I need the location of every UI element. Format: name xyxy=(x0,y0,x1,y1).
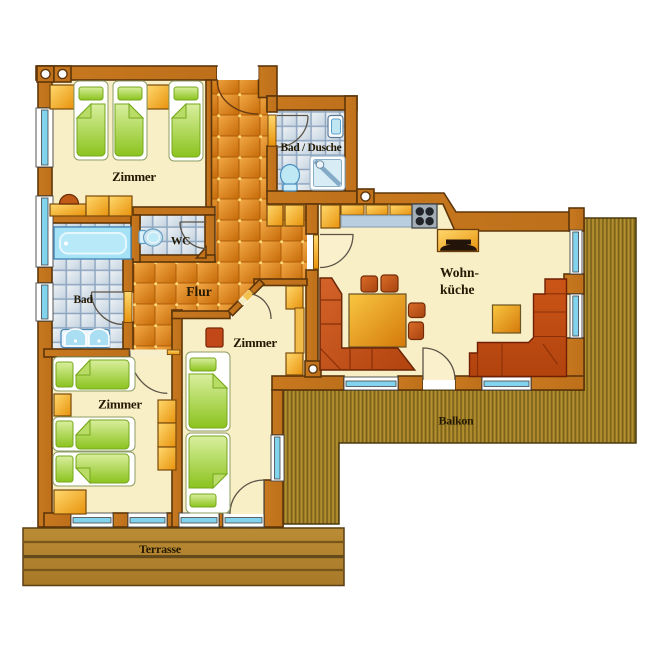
svg-text:Wohn-: Wohn- xyxy=(440,265,479,280)
svg-text:Bad / Dusche: Bad / Dusche xyxy=(281,142,342,154)
svg-text:Zimmer: Zimmer xyxy=(233,335,277,350)
svg-text:Zimmer: Zimmer xyxy=(98,397,142,412)
svg-text:küche: küche xyxy=(440,282,475,297)
svg-text:Flur: Flur xyxy=(186,284,212,299)
svg-text:Terrasse: Terrasse xyxy=(139,542,182,556)
svg-text:Zimmer: Zimmer xyxy=(112,169,156,184)
svg-text:WC: WC xyxy=(171,236,190,248)
svg-text:Bad: Bad xyxy=(74,294,94,306)
svg-text:Balkon: Balkon xyxy=(439,414,475,428)
